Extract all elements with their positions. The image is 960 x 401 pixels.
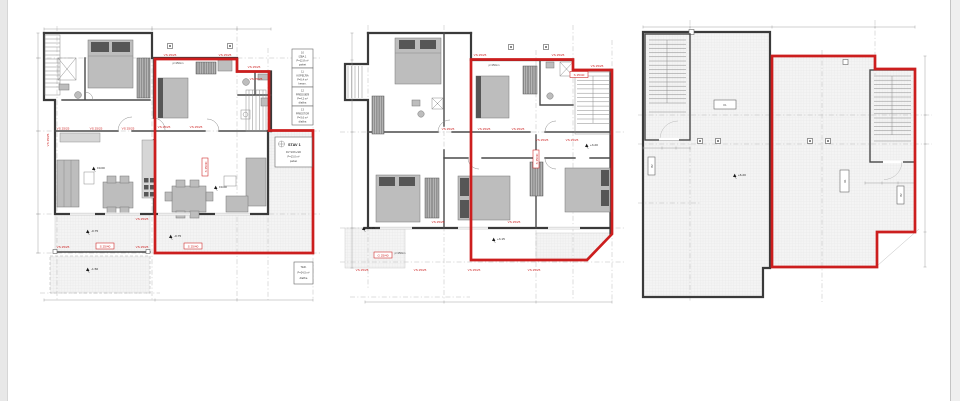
b2-label: B2 bbox=[650, 164, 654, 168]
beam-label: S 25/40 bbox=[535, 153, 539, 164]
beam-label: G 25/40 bbox=[377, 254, 388, 258]
beam-label: S 25/40 bbox=[204, 161, 208, 172]
sill-label: p=150cm bbox=[173, 61, 184, 65]
svg-text:dlažba: dlažba bbox=[299, 101, 307, 105]
vs-label: VS 25/25 bbox=[356, 268, 369, 272]
vs-label: VS 25/25 bbox=[136, 245, 149, 249]
elevation-label: -1.50 bbox=[91, 267, 98, 271]
svg-text:parket: parket bbox=[299, 63, 306, 67]
b2-label: B2 bbox=[899, 193, 903, 197]
room-schedule-table: 10 IZBA 1 P=12,8 m² parket 11 KÚPEĽŇA P=… bbox=[292, 49, 313, 125]
vs-label: VS 25/25 bbox=[474, 53, 487, 57]
vs-label: VS 25/25 bbox=[414, 268, 427, 272]
svg-text:STAV 1: STAV 1 bbox=[288, 143, 301, 147]
beam-label: S 25/40 bbox=[100, 245, 111, 249]
roof-terrace-plan: K1 K1 B2 B2 +6.20 bbox=[638, 20, 932, 302]
beam-label: S 25/40 bbox=[574, 73, 585, 77]
vs-label: VS 25/25 bbox=[158, 125, 171, 129]
elevation-label: -0.75 bbox=[91, 229, 98, 233]
k1-label: K1 bbox=[723, 103, 727, 107]
first-floor-plan: VS 25/25 VS 25/25 VS 25/25 S 25/40 VS 25… bbox=[340, 25, 625, 304]
vs-label: VS 25/25 bbox=[219, 53, 232, 57]
svg-text:keram.: keram. bbox=[299, 82, 307, 86]
elevation-label: -0.75 bbox=[174, 234, 181, 238]
vs-label: VS 25/25 bbox=[46, 133, 50, 146]
plans-canvas: VS 25/25 VS 25/25 VS 25/25 VS 25/25 VS 2… bbox=[0, 0, 960, 401]
elevation-label: +6.20 bbox=[738, 173, 746, 177]
svg-text:P=13,0 m²: P=13,0 m² bbox=[287, 155, 299, 159]
vs-label: VS 25/25 bbox=[478, 127, 491, 131]
svg-text:dlažba: dlažba bbox=[300, 276, 308, 280]
ground-floor-plan: VS 25/25 VS 25/25 VS 25/25 VS 25/25 VS 2… bbox=[36, 26, 320, 302]
vs-label: VS 25/25 bbox=[90, 127, 103, 131]
vs-label: VS 25/25 bbox=[248, 65, 261, 69]
vs-label: VS 25/25 bbox=[512, 127, 525, 131]
svg-text:DV SOK+SD: DV SOK+SD bbox=[286, 150, 301, 154]
vs-label: VS 25/25 bbox=[528, 268, 541, 272]
vs-label: VS 25/25 bbox=[122, 127, 135, 131]
vs-label: VS 25/25 bbox=[432, 220, 445, 224]
elevation-label: ±0.00 bbox=[219, 185, 227, 189]
k1-label: K1 bbox=[843, 179, 847, 183]
svg-text:P=5,4 m²: P=5,4 m² bbox=[297, 78, 308, 82]
vs-label: VS 25/25 bbox=[136, 217, 149, 221]
beam-label: S 25/40 bbox=[188, 245, 199, 249]
vs-label: VS 25/25 bbox=[536, 138, 549, 142]
svg-text:dlažba: dlažba bbox=[299, 120, 307, 124]
elevation-label: +3.15 bbox=[497, 237, 505, 241]
svg-text:P=3,6 m²: P=3,6 m² bbox=[297, 116, 308, 120]
vs-label: VS 25/25 bbox=[190, 125, 203, 129]
vs-label: VS 25/25 bbox=[442, 127, 455, 131]
svg-text:PRIESTOR: PRIESTOR bbox=[296, 112, 309, 116]
vs-label: VS 25/25 bbox=[164, 53, 177, 57]
vs-label: VS 25/25 bbox=[468, 268, 481, 272]
vs-label: VS 25/25 bbox=[566, 138, 579, 142]
terrace-callout-box: TER. P=24,5 m² dlažba bbox=[294, 262, 313, 284]
sill-label: p=150cm bbox=[395, 251, 406, 255]
vs-label: VS 25/25 bbox=[552, 53, 565, 57]
elevation-label: ±0.00 bbox=[97, 166, 105, 170]
vs-label: VS 25/25 bbox=[57, 245, 70, 249]
floor-plan-image: VS 25/25 VS 25/25 VS 25/25 VS 25/25 VS 2… bbox=[0, 0, 960, 401]
svg-text:P=4,2 m²: P=4,2 m² bbox=[297, 97, 308, 101]
stav-callout-box: STAV 1 DV SOK+SD P=13,0 m² parket bbox=[275, 137, 312, 167]
elevation-label: +3.15 bbox=[367, 226, 375, 230]
elevation-label: +3.20 bbox=[590, 143, 598, 147]
svg-text:P=24,5 m²: P=24,5 m² bbox=[297, 271, 309, 275]
svg-text:P=12,8 m²: P=12,8 m² bbox=[296, 59, 308, 63]
vs-label: VS 25/25 bbox=[250, 77, 263, 81]
vs-label: VS 25/25 bbox=[57, 127, 70, 131]
sill-label: p=150cm bbox=[489, 63, 500, 67]
svg-text:TER.: TER. bbox=[301, 265, 307, 269]
svg-text:parket: parket bbox=[290, 159, 297, 163]
vs-label: VS 25/25 bbox=[591, 64, 604, 68]
svg-text:IZBA 1: IZBA 1 bbox=[299, 55, 307, 59]
vs-label: VS 25/25 bbox=[508, 220, 521, 224]
